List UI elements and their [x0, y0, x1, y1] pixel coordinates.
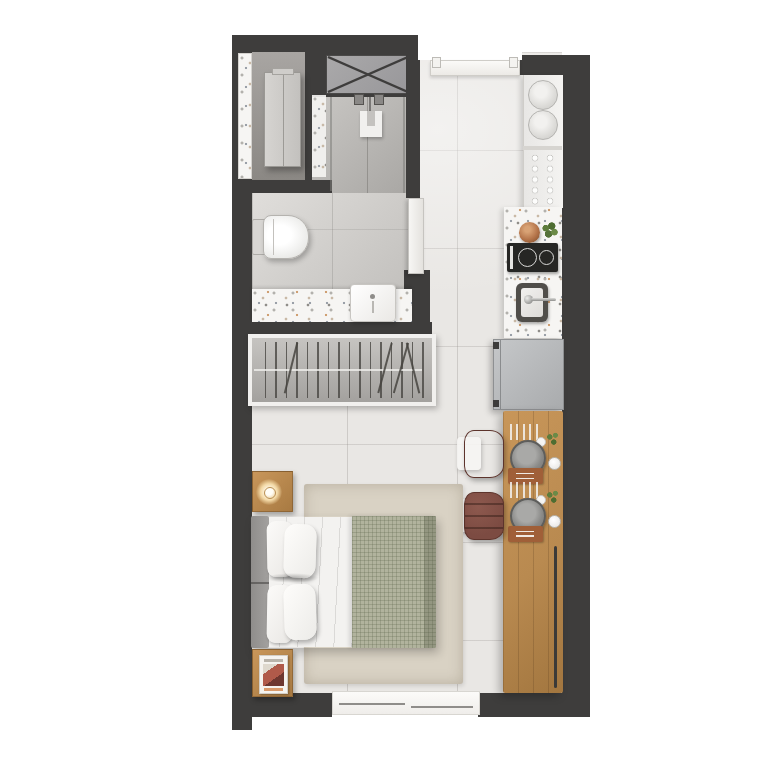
magazine-cover-art [263, 664, 284, 686]
service-shaft [326, 55, 410, 94]
closet-rail [254, 369, 422, 371]
chair-1 [464, 430, 504, 478]
shower-niche-box [360, 111, 382, 137]
bed [251, 516, 436, 648]
window-track-right [411, 706, 473, 708]
bowl [519, 222, 540, 243]
sink-faucet-dot [370, 294, 375, 299]
niche-side-panel [238, 53, 252, 179]
cutlery-set-2 [510, 482, 540, 498]
cutlery-set-1 [510, 424, 540, 440]
door-hinge-left [432, 57, 441, 68]
magazine-footer-bar [264, 688, 283, 691]
cabinet-door-split [283, 73, 284, 166]
cooktop-knob-bar [510, 246, 513, 269]
toilet [263, 215, 309, 259]
wall-bottom-right [478, 693, 590, 717]
magazine-title-bar [264, 659, 283, 662]
greens [540, 221, 559, 239]
glass-1 [548, 457, 561, 470]
mat-cutlery-1 [516, 473, 534, 479]
pillow-front-bottom [283, 583, 317, 640]
fridge-hinge-top [493, 342, 499, 349]
pillow-gap-shadow [265, 573, 319, 583]
fridge-door-line [500, 340, 501, 409]
shaft-x-icon [327, 56, 409, 93]
placemat-2 [508, 526, 543, 542]
shower-niche-slot [367, 111, 375, 126]
plant-sprig-1 [545, 431, 561, 448]
outside-mask-entry [418, 28, 522, 60]
burner-large [518, 248, 537, 267]
open-closet [248, 334, 436, 406]
dish-rack-plate-2 [528, 110, 558, 140]
plaid-blanket [352, 516, 436, 648]
wardrobe-cabinet [264, 72, 301, 167]
wall-top [232, 35, 420, 52]
shower-valve-left [354, 94, 364, 105]
sink-drain-line [372, 301, 374, 313]
shower-ledge [312, 95, 326, 177]
chair-2 [464, 492, 504, 540]
wall-bathroom-top [232, 180, 332, 193]
fridge [493, 339, 564, 410]
magazine [259, 655, 288, 694]
dining-table [503, 411, 563, 693]
mat-cutlery-2 [516, 531, 534, 537]
bathroom-sink [350, 284, 396, 322]
floor-plan-canvas [0, 0, 768, 768]
cabinet-top-cap [272, 68, 294, 75]
pillow-front-top [283, 523, 317, 578]
cooktop [507, 243, 558, 272]
nightstand-book [252, 649, 293, 697]
wall-right [562, 55, 590, 717]
rack-divider [523, 146, 562, 150]
kitchen-sink [516, 283, 548, 322]
door-hinge-right [509, 57, 518, 68]
shower-glass-left [330, 97, 332, 191]
shower-valve-right [374, 94, 384, 105]
entry-door [430, 60, 520, 76]
glass-2 [548, 515, 561, 528]
lamp-shade [264, 487, 276, 499]
plant-sprig-2 [545, 489, 561, 506]
fridge-hinge-bottom [493, 400, 499, 407]
nightstand-lamp [252, 471, 293, 512]
toilet-seat-line [273, 219, 274, 255]
window-track-left [339, 703, 405, 705]
shower-glass-right [403, 97, 405, 193]
faucet-arm [531, 298, 556, 301]
bathroom-door [408, 198, 424, 274]
burner-small [539, 250, 554, 265]
glass-rack [528, 153, 558, 207]
window-sill [332, 691, 480, 715]
wall-entry-column [406, 52, 420, 198]
dish-rack-plate-1 [528, 80, 558, 110]
table-groove [554, 546, 557, 688]
wall-shower-left [305, 97, 312, 193]
